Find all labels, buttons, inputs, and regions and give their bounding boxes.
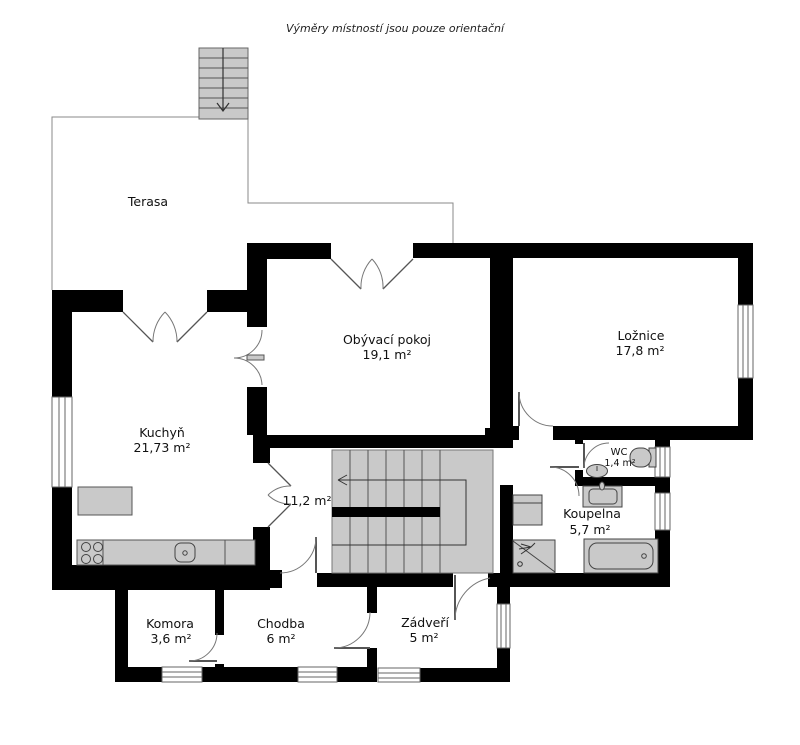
kitchen-terrace-door <box>123 312 207 342</box>
hall-chodba-door <box>280 537 316 573</box>
komora-window <box>162 667 202 682</box>
label-chodba-area: 6 m² <box>266 631 295 646</box>
floor-plan: Výměry místností jsou pouze orientační T… <box>0 0 800 745</box>
wc-window <box>655 447 670 477</box>
koupelna-door <box>550 467 579 496</box>
zadveri-entry-door <box>455 575 490 620</box>
label-terasa: Terasa <box>127 194 168 209</box>
label-komora-area: 3,6 m² <box>150 631 191 646</box>
koupelna-window <box>655 493 670 530</box>
shower-icon <box>513 540 555 573</box>
chodba-window <box>298 667 337 682</box>
kitchen-counter <box>77 540 255 565</box>
bathtub-icon <box>584 539 658 573</box>
label-zadveri-name: Zádveří <box>401 615 449 630</box>
label-kuchyn-area: 21,73 m² <box>134 440 191 455</box>
loznice-door <box>519 392 553 426</box>
label-loznice-area: 17,8 m² <box>616 343 665 358</box>
label-chodba-name: Chodba <box>257 616 305 631</box>
living-terrace-door <box>331 259 413 289</box>
label-zadveri-area: 5 m² <box>409 630 438 645</box>
label-obyvaci-name: Obývací pokoj <box>343 332 431 347</box>
loznice-window <box>738 305 753 378</box>
exterior-stairs <box>199 48 248 119</box>
kitchen-fixtures <box>77 487 255 565</box>
label-wc-area: 1,4 m² <box>604 458 635 469</box>
interior-stairs <box>332 450 493 573</box>
label-koupelna-name: Koupelna <box>563 506 621 521</box>
komora-door <box>189 633 217 661</box>
label-hala-area: 11,2 m² <box>283 493 332 508</box>
label-kuchyn-name: Kuchyň <box>139 425 185 440</box>
label-koupelna-area: 5,7 m² <box>569 522 610 537</box>
label-loznice-name: Ložnice <box>618 328 665 343</box>
label-komora-name: Komora <box>146 616 194 631</box>
kitchen-living-door <box>234 330 264 385</box>
kitchen-window <box>52 397 72 487</box>
label-wc-name: WC <box>611 447 628 458</box>
zadveri-right-window <box>497 604 510 648</box>
bathroom-sink-icon <box>583 482 622 507</box>
zadveri-bottom-window <box>378 668 420 682</box>
floor-plan-canvas: Výměry místností jsou pouze orientační T… <box>0 0 800 745</box>
disclaimer-text: Výměry místností jsou pouze orientační <box>286 22 506 35</box>
washing-machine-icon <box>513 495 542 525</box>
chodba-zadveri-door <box>334 612 370 648</box>
kitchen-cabinet <box>78 487 132 515</box>
label-obyvaci-area: 19,1 m² <box>363 347 412 362</box>
